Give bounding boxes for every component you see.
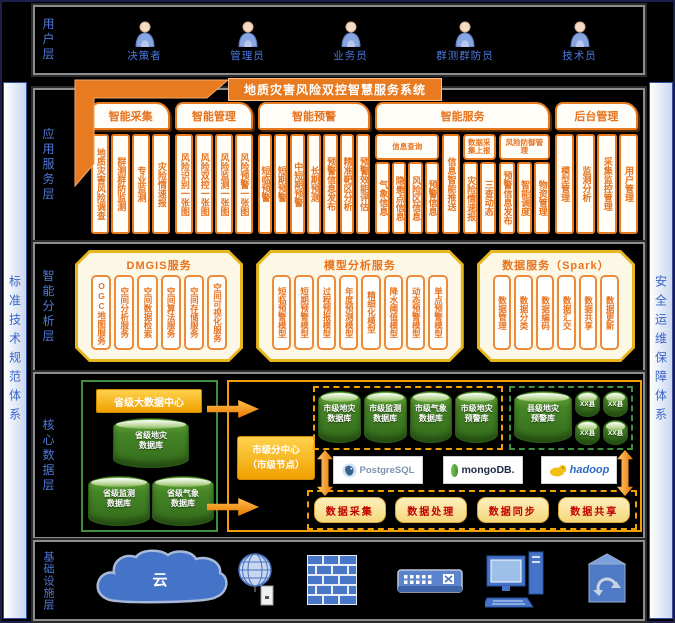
person-icon bbox=[568, 21, 592, 47]
group-smart-service: 智能服务 信息查询 气象信息 隐患点信息 风险区信息 预警信息 信息智能推送 bbox=[375, 102, 549, 234]
role-label: 管理员 bbox=[230, 48, 265, 63]
group-backend-management: 后台管理 模型管理 监测分析 采集监控管理 用户管理 bbox=[555, 102, 638, 234]
person-icon bbox=[133, 21, 157, 47]
analysis-column: 动态预警模型 bbox=[406, 275, 425, 350]
mongodb-logo: mongoDB. bbox=[443, 456, 523, 484]
panel-title: 数据服务（Spark） bbox=[480, 257, 632, 273]
firewall-icon bbox=[307, 555, 357, 610]
role-label: 群测群防员 bbox=[436, 48, 494, 63]
postgresql-logo: PostgreSQL bbox=[333, 456, 423, 484]
person-icon bbox=[339, 21, 363, 47]
province-big-data-center: 省级大数据中心 省级地灾数据库 省级监测数据库 省级气象数据库 bbox=[81, 380, 218, 532]
hadoop-elephant-icon bbox=[549, 463, 567, 477]
panel-model-analysis: 模型分析服务 短临预警模型 短期预警模型 过程预报模型 年度预测模型 精细化模型… bbox=[256, 250, 464, 362]
subgroup-risk-defense: 风险防御管理 预警信息发布 智能调度 物资管理 bbox=[499, 134, 550, 234]
app-column: 精准靶区分析 bbox=[340, 134, 354, 234]
app-column: 中短期预警 bbox=[290, 134, 304, 234]
analysis-column: 短临预警模型 bbox=[272, 275, 291, 350]
data-function: 数据同步 bbox=[477, 497, 549, 523]
user-roles: 决策者 管理员 业务员 群测群防员 技术员 bbox=[93, 15, 631, 69]
data-functions-box: 数据采集 数据处理 数据同步 数据共享 bbox=[307, 490, 637, 530]
database-cylinder: 市级地灾数据库 bbox=[318, 391, 361, 443]
city-databases-box: 市级地灾数据库 市级监测数据库 市级气象数据库 市级地灾预警库 bbox=[313, 386, 503, 450]
orange-ribbon bbox=[72, 78, 232, 190]
analysis-column: 数据分类 bbox=[514, 275, 533, 350]
database-cylinder: 市级地灾预警库 bbox=[455, 391, 498, 443]
right-system-bar-label: 安全运维保障体系 bbox=[653, 275, 670, 427]
analysis-column: 过程预报模型 bbox=[317, 275, 336, 350]
flow-arrow-vertical bbox=[617, 450, 633, 496]
cloud-icon: 云 bbox=[90, 547, 230, 609]
core-data-layer: 核心数据层 省级大数据中心 省级地灾数据库 省级监测数据库 省级气象数据库 市级… bbox=[33, 372, 645, 539]
analysis-column: 短期预警模型 bbox=[294, 275, 313, 350]
app-column: 模型管理 bbox=[555, 134, 574, 234]
app-column: 短临预警 bbox=[258, 134, 272, 234]
app-column: 气象信息 bbox=[375, 162, 389, 234]
infrastructure-layer: 基础设施层 云 bbox=[33, 540, 645, 621]
group-header: 智能服务 bbox=[375, 102, 549, 130]
app-column: 智能调度 bbox=[517, 162, 533, 234]
user-layer: 用户层 决策者 管理员 业务员 群测群防员 技术员 bbox=[33, 5, 645, 75]
panel-data-service: 数据服务（Spark） 数据管理 数据分类 数据编码 数据汇交 数据共享 数据更… bbox=[477, 250, 635, 362]
person-icon bbox=[236, 21, 260, 47]
panel-dmgis: DMGIS服务 OGC地图服务 空间分析服务 空间数据检索 空间算法服务 空间存… bbox=[75, 250, 243, 362]
cloud-label: 云 bbox=[90, 569, 230, 590]
analysis-column: 降水阈值模型 bbox=[384, 275, 403, 350]
database-cylinder: 市级监测数据库 bbox=[364, 391, 407, 443]
data-layer-label: 核心数据层 bbox=[40, 418, 57, 493]
app-column: 预警信息发布 bbox=[323, 134, 337, 234]
data-function: 数据处理 bbox=[395, 497, 467, 523]
database-cylinder: 省级地灾数据库 bbox=[113, 418, 189, 468]
role-business-user: 业务员 bbox=[333, 21, 368, 63]
county-databases-box: 县级地灾预警库 XX县 XX县 XX县 XX县 bbox=[509, 386, 633, 450]
network-switch-icon bbox=[397, 566, 463, 603]
role-decision-maker: 决策者 bbox=[127, 21, 162, 63]
analysis-column: 空间数据检索 bbox=[137, 275, 157, 350]
analysis-column: 数据汇交 bbox=[557, 275, 576, 350]
database-cylinder: 县级地灾预警库 bbox=[514, 391, 572, 443]
app-column: 物资管理 bbox=[534, 162, 550, 234]
subgroup-header: 数据采集上报 bbox=[463, 134, 496, 160]
workstation-icon bbox=[485, 550, 547, 615]
database-cylinder: XX县 bbox=[603, 420, 628, 446]
system-title-banner: 地质灾害风险双控智慧服务系统 bbox=[228, 78, 442, 101]
app-column: 风险区信息 bbox=[408, 162, 422, 234]
app-column: 采集监控管理 bbox=[597, 134, 616, 234]
person-icon bbox=[453, 21, 477, 47]
subgroup-data-report: 数据采集上报 灾险情速报 三查动态 bbox=[463, 134, 496, 234]
architecture-diagram: 标准技术规范体系 安全运维保障体系 用户层 决策者 管理员 业务员 群测群防员 bbox=[0, 0, 675, 623]
router-icon bbox=[583, 550, 631, 613]
city-sub-center: 市级分中心 （市级节点） 市级地灾数据库 市级监测数据库 市级气象数据库 市级地… bbox=[227, 380, 642, 532]
app-column: 风险预警一张图 bbox=[235, 134, 253, 234]
left-system-bar: 标准技术规范体系 bbox=[3, 82, 27, 619]
subgroup-header: 信息查询 bbox=[375, 134, 439, 160]
database-cylinder: XX县 bbox=[575, 391, 600, 417]
analysis-column: OGC地图服务 bbox=[91, 275, 111, 350]
analysis-column: 精细化模型 bbox=[361, 275, 380, 350]
app-column: 隐患点信息 bbox=[392, 162, 406, 234]
analysis-column: 数据更新 bbox=[600, 275, 619, 350]
flow-arrow-vertical bbox=[317, 450, 333, 496]
role-label: 决策者 bbox=[127, 48, 162, 63]
analysis-column: 空间分析服务 bbox=[114, 275, 134, 350]
data-function: 数据共享 bbox=[558, 497, 630, 523]
subgroup-info-push: 信息智能推送 bbox=[442, 134, 459, 234]
left-system-bar-label: 标准技术规范体系 bbox=[7, 275, 24, 427]
group-header: 智能预警 bbox=[258, 102, 371, 130]
panel-title: 模型分析服务 bbox=[259, 257, 461, 273]
app-column: 信息智能推送 bbox=[442, 134, 459, 234]
analysis-layer: 智能分析层 DMGIS服务 OGC地图服务 空间分析服务 空间数据检索 空间算法… bbox=[33, 242, 645, 372]
app-column: 短期预警 bbox=[274, 134, 288, 234]
postgresql-elephant-icon bbox=[342, 463, 357, 478]
city-center-title: 市级分中心 （市级节点） bbox=[237, 436, 315, 480]
database-cylinder: 市级气象数据库 bbox=[410, 391, 453, 443]
analysis-column: 空间可视化服务 bbox=[207, 275, 227, 350]
right-system-bar: 安全运维保障体系 bbox=[649, 82, 673, 619]
database-cylinder: XX县 bbox=[575, 420, 600, 446]
app-column: 三查动态 bbox=[480, 162, 496, 234]
app-column: 长期预测 bbox=[307, 134, 321, 234]
database-cylinder: 省级气象数据库 bbox=[152, 476, 214, 526]
analysis-column: 年度预测模型 bbox=[339, 275, 358, 350]
panel-title: DMGIS服务 bbox=[78, 257, 240, 273]
analysis-column: 数据编码 bbox=[536, 275, 555, 350]
analysis-column: 空间存储服务 bbox=[184, 275, 204, 350]
network-globe-icon bbox=[237, 552, 279, 611]
subgroup-info-query: 信息查询 气象信息 隐患点信息 风险区信息 预警信息 bbox=[375, 134, 439, 234]
user-layer-label: 用户层 bbox=[40, 18, 57, 63]
analysis-column: 单点预警模型 bbox=[428, 275, 447, 350]
role-technician: 技术员 bbox=[562, 21, 597, 63]
database-cylinder: 省级监测数据库 bbox=[88, 476, 150, 526]
analysis-layer-label: 智能分析层 bbox=[40, 270, 57, 345]
app-column: 预警信息 bbox=[425, 162, 439, 234]
app-column: 预警效能评估 bbox=[356, 134, 370, 234]
role-label: 业务员 bbox=[333, 48, 368, 63]
mongodb-leaf-icon bbox=[451, 464, 458, 477]
infrastructure-layer-label: 基础设施层 bbox=[40, 551, 56, 611]
subgroup-header: 风险防御管理 bbox=[499, 134, 550, 160]
role-mass-monitoring: 群测群防员 bbox=[436, 21, 494, 63]
data-function: 数据采集 bbox=[314, 497, 386, 523]
app-column: 监测分析 bbox=[576, 134, 595, 234]
role-label: 技术员 bbox=[562, 48, 597, 63]
analysis-column: 空间算法服务 bbox=[161, 275, 181, 350]
analysis-column: 数据共享 bbox=[579, 275, 598, 350]
database-cylinder: XX县 bbox=[603, 391, 628, 417]
analysis-column: 数据管理 bbox=[493, 275, 512, 350]
app-column: 灾险情速报 bbox=[463, 162, 479, 234]
role-administrator: 管理员 bbox=[230, 21, 265, 63]
group-smart-warning: 智能预警 短临预警 短期预警 中短期预警 长期预测 预警信息发布 精准靶区分析 … bbox=[258, 102, 371, 234]
application-layer-label: 应用服务层 bbox=[40, 128, 57, 203]
app-column: 预警信息发布 bbox=[499, 162, 515, 234]
app-column: 用户管理 bbox=[619, 134, 638, 234]
province-center-title: 省级大数据中心 bbox=[96, 389, 202, 413]
hadoop-logo: hadoop bbox=[541, 456, 617, 484]
group-header: 后台管理 bbox=[555, 102, 638, 130]
